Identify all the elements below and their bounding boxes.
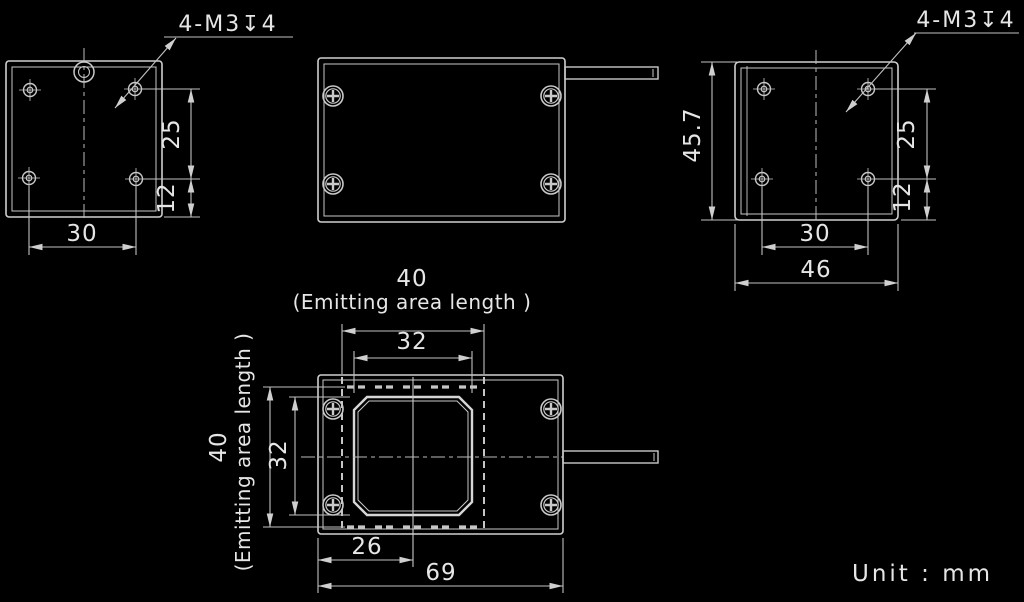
- cable: [565, 67, 658, 79]
- cable: [563, 451, 658, 463]
- dimension-value: 40: [396, 266, 427, 292]
- cable-outline: [565, 67, 658, 79]
- cable-outline: [563, 451, 658, 463]
- dimension-value: 32: [266, 439, 292, 470]
- tapped-hole: [751, 168, 773, 190]
- dimension-value: 25: [159, 118, 185, 149]
- emitting-area-note: (Emitting area length ): [231, 333, 255, 572]
- screw-head: [323, 174, 343, 194]
- thread-callout-right-view: 4-M3↧4: [846, 8, 1019, 112]
- top-view-inner-line: [324, 64, 559, 216]
- screw-head: [541, 399, 561, 419]
- dimension-value: 45.7: [680, 107, 706, 162]
- dimension-hole-pitch-25: 25: [142, 89, 200, 179]
- tapped-hole: [19, 79, 41, 101]
- leader-line: [846, 33, 916, 112]
- screw-head: [541, 495, 561, 515]
- dimension-hole-edge-12: 12: [890, 179, 936, 220]
- dimension-value: 12: [890, 181, 916, 212]
- left-side-view: 4-M3↧4 25 12 30: [6, 12, 293, 255]
- thread-note-label: 4-M3↧4: [916, 8, 1015, 33]
- dimension-value: 12: [154, 182, 180, 213]
- screw-head: [541, 86, 561, 106]
- dimension-hole-pitch-30: 30: [29, 186, 136, 255]
- dimension-value: 32: [396, 329, 427, 355]
- screw-head: [541, 174, 561, 194]
- dimension-hole-pitch-25: 25: [875, 89, 936, 179]
- thread-note-label: 4-M3↧4: [178, 12, 277, 37]
- unit-note: Unit : mm: [852, 561, 993, 587]
- dimension-hole-edge-12: 12: [154, 179, 200, 217]
- tapped-hole: [18, 167, 40, 189]
- screw-head: [323, 86, 343, 106]
- dimension-value: 69: [425, 560, 456, 586]
- dimension-center-offset-26: 26: [318, 534, 413, 593]
- led-unit-dimension-drawing: 4-M3↧4 25 12 30: [0, 0, 1024, 602]
- front-view: 40 (Emitting area length ) 32 40 (Emitti…: [206, 266, 658, 593]
- leader-line: [115, 38, 176, 108]
- thread-callout-left-view: 4-M3↧4: [115, 12, 293, 108]
- dimension-value: 40: [206, 431, 232, 462]
- top-view: [318, 58, 658, 222]
- screw-head: [323, 399, 343, 419]
- dimension-value: 30: [799, 221, 830, 247]
- dimension-hole-pitch-30: 30: [762, 187, 868, 255]
- top-view-body-outline: [318, 58, 565, 222]
- dimension-value: 46: [800, 257, 831, 283]
- dimension-value: 25: [894, 118, 920, 149]
- tapped-hole: [753, 78, 775, 100]
- screw-head: [323, 495, 343, 515]
- right-side-view: 4-M3↧4 45.7 25 12 30: [680, 8, 1019, 291]
- dimension-value: 26: [351, 534, 382, 560]
- emitting-area-note: (Emitting area length ): [293, 290, 532, 314]
- dimension-value: 30: [66, 221, 97, 247]
- technical-drawing-canvas: 4-M3↧4 25 12 30: [0, 0, 1024, 602]
- dimension-height-45-7: 45.7: [680, 62, 737, 220]
